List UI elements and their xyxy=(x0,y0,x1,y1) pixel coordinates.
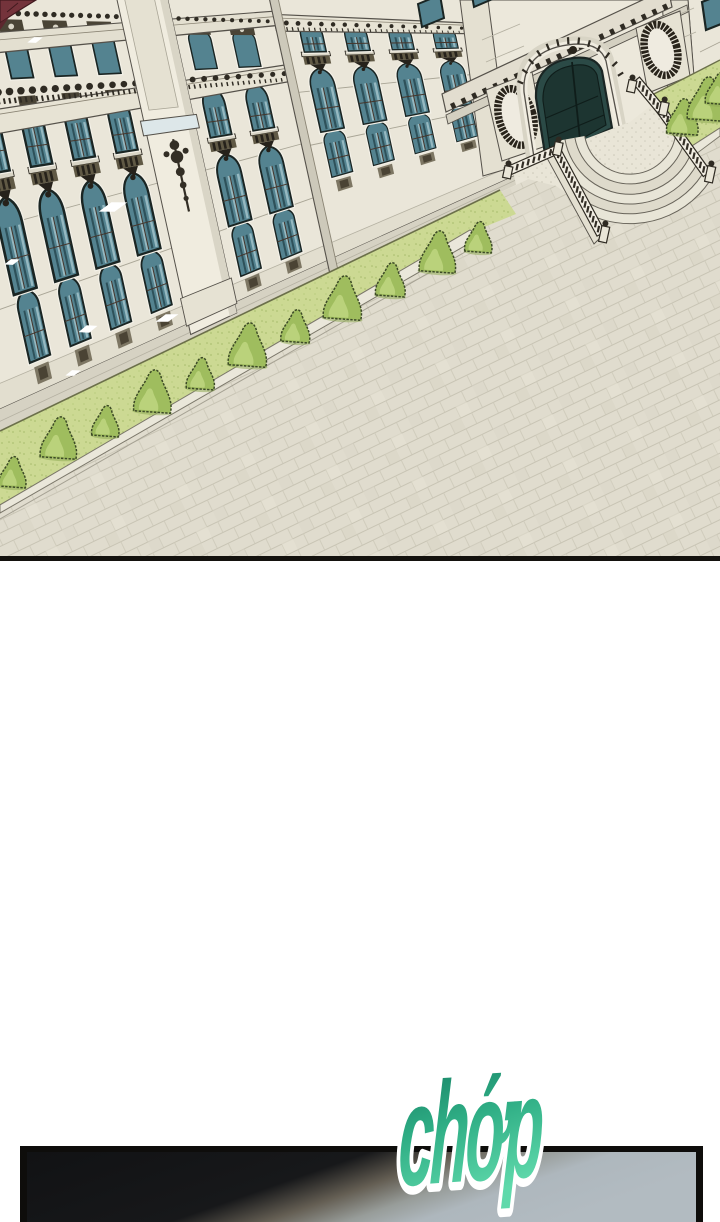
svg-text:chớp: chớp xyxy=(396,1045,545,1217)
